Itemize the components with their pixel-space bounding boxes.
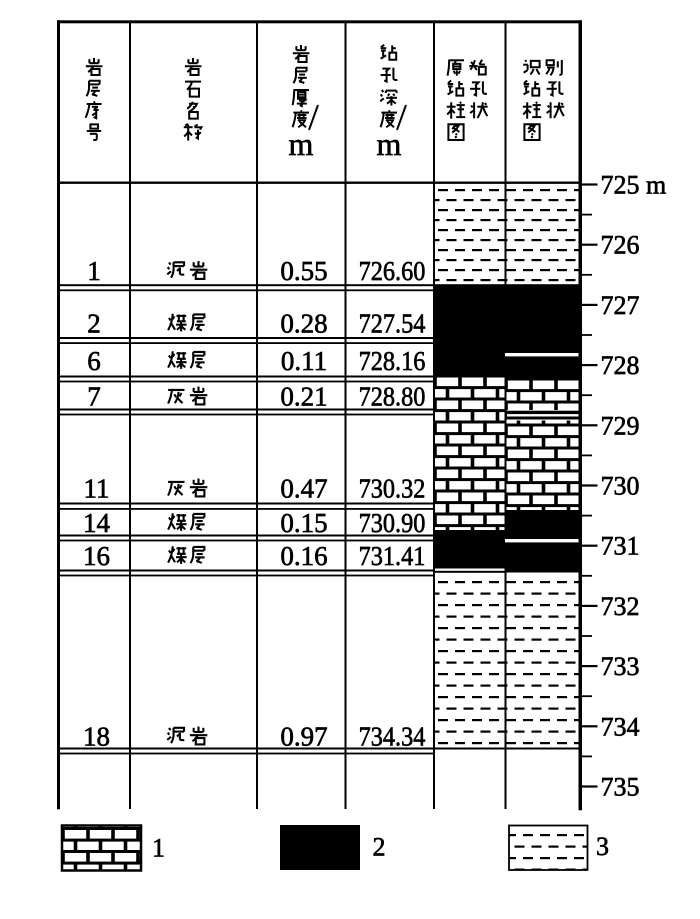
svg-text:0.16: 0.16 — [280, 541, 327, 571]
svg-text:0.21: 0.21 — [280, 382, 327, 412]
svg-text:1: 1 — [152, 834, 165, 863]
svg-text:3: 3 — [596, 832, 609, 861]
svg-text:7: 7 — [87, 382, 101, 412]
svg-text:726.60: 726.60 — [359, 256, 426, 286]
svg-text:0.11: 0.11 — [281, 346, 327, 376]
svg-text:0.47: 0.47 — [280, 474, 327, 504]
svg-text:1: 1 — [87, 256, 101, 286]
svg-text:m: m — [289, 126, 314, 162]
svg-text:731: 731 — [601, 532, 640, 561]
svg-text:730: 730 — [601, 472, 640, 501]
svg-text:731.41: 731.41 — [359, 541, 426, 571]
svg-text:2: 2 — [373, 833, 386, 862]
svg-text:734.34: 734.34 — [359, 721, 426, 751]
svg-text:0.97: 0.97 — [280, 722, 327, 752]
svg-text:734: 734 — [601, 712, 640, 741]
svg-text:728: 728 — [601, 351, 640, 380]
svg-text:6: 6 — [87, 346, 101, 376]
svg-text:0.15: 0.15 — [280, 508, 327, 538]
svg-text:732: 732 — [601, 592, 640, 621]
svg-text:729: 729 — [601, 411, 640, 440]
svg-text:0.55: 0.55 — [280, 256, 327, 286]
svg-text:m: m — [377, 126, 402, 162]
svg-text:733: 733 — [601, 652, 640, 681]
svg-text:11: 11 — [84, 474, 110, 504]
svg-text:730.90: 730.90 — [359, 508, 426, 538]
svg-text:727: 727 — [601, 291, 640, 320]
svg-text:725 m: 725 m — [601, 171, 667, 200]
svg-text:728.80: 728.80 — [359, 381, 426, 411]
svg-text:728.16: 728.16 — [359, 346, 426, 376]
svg-text:727.54: 727.54 — [359, 308, 426, 338]
svg-text:2: 2 — [87, 309, 101, 339]
svg-text:0.28: 0.28 — [280, 309, 327, 339]
svg-text:730.32: 730.32 — [359, 473, 426, 503]
svg-text:16: 16 — [83, 541, 110, 571]
svg-text:14: 14 — [83, 508, 111, 538]
svg-text:726: 726 — [601, 231, 640, 260]
svg-text:18: 18 — [83, 722, 110, 752]
svg-text:735: 735 — [601, 773, 640, 802]
